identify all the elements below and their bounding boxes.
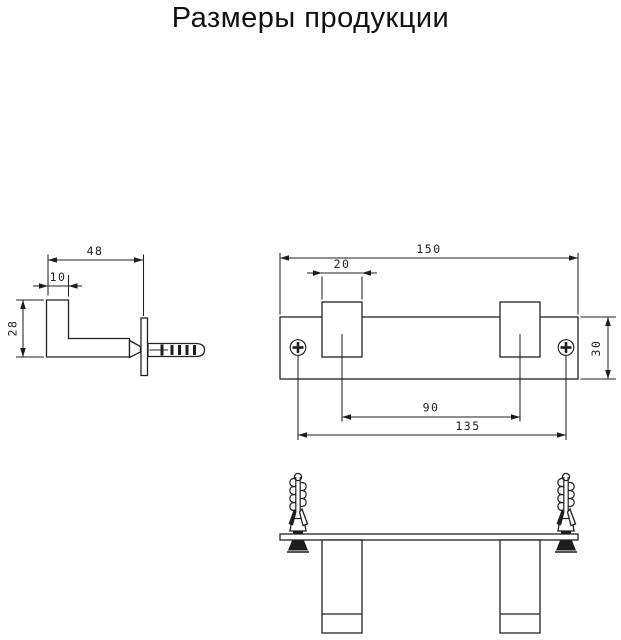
anchor-screw-tip	[161, 345, 164, 356]
front-bar-height-dim-label: 30	[589, 340, 603, 357]
countersunk-screw-head	[130, 341, 141, 358]
right-phillips-screw-icon	[558, 340, 574, 356]
side-hook-offset-dim-label: 10	[50, 270, 67, 284]
top-view	[280, 473, 578, 633]
anchor-slot	[193, 345, 196, 355]
right-hook-arm	[500, 540, 540, 633]
left-phillips-screw-icon	[290, 340, 306, 356]
hook-profile	[47, 300, 130, 357]
anchor-slot	[171, 345, 174, 355]
anchor-slot	[186, 345, 189, 355]
left-hook-arm	[322, 540, 362, 633]
side-height-dim-label: 28	[6, 320, 20, 337]
front-view: 150 20 30 90	[280, 242, 616, 440]
front-hook-width-dim-label: 20	[334, 257, 351, 271]
front-hook-width-dimension: 20	[307, 257, 377, 300]
side-width-dim-label: 48	[87, 244, 104, 258]
wall-anchor	[148, 344, 205, 357]
front-bar-height-dimension: 30	[581, 317, 617, 379]
side-view: 48 10 28	[6, 244, 205, 376]
bar-edge	[280, 534, 578, 540]
wall-plate	[141, 318, 148, 376]
front-hook-spacing-dim-label: 90	[423, 401, 440, 415]
side-height-dimension: 28	[6, 300, 45, 357]
product-dimensions-page: { "title": "Размеры продукции", "colors"…	[0, 0, 621, 640]
side-hook-offset-dimension: 10	[33, 270, 82, 297]
front-total-width-dim-label: 150	[416, 242, 441, 256]
technical-drawing: 48 10 28	[0, 0, 621, 640]
front-mount-hole-spacing-dim-label: 135	[455, 419, 480, 433]
anchor-slot	[178, 345, 181, 355]
